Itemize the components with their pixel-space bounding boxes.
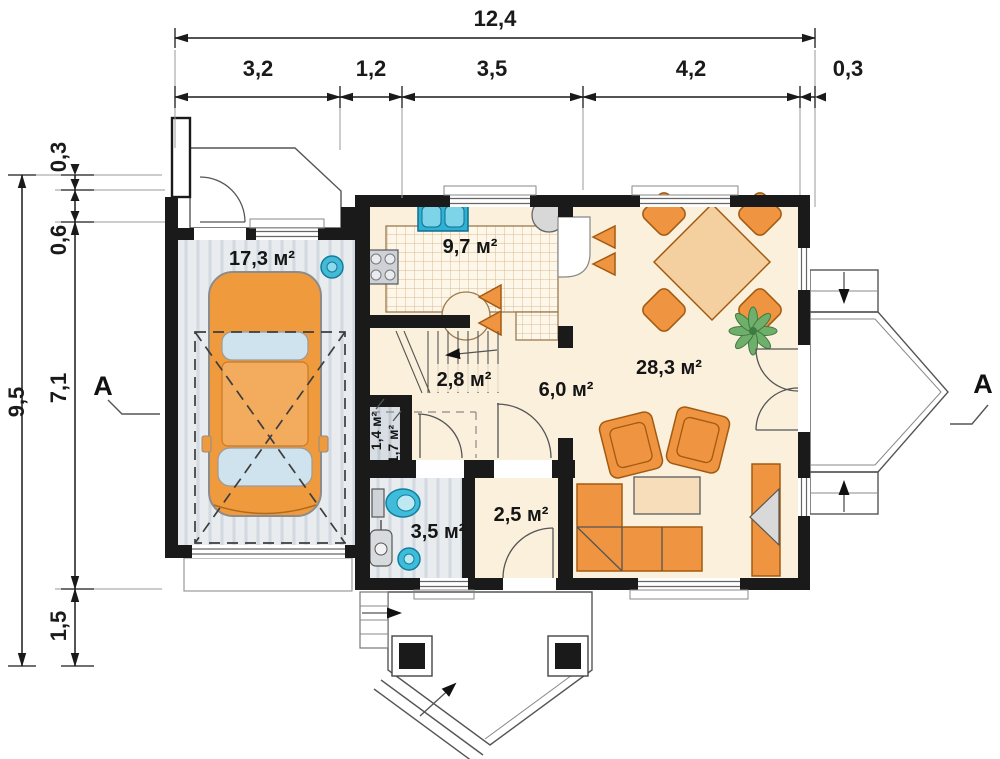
- dim-top-seg1: 3,2: [243, 56, 274, 81]
- garage-apron: [184, 558, 352, 591]
- living-window-top: [632, 186, 738, 207]
- dimensions-top: 12,4 3,2 1,2 3,5 4,2 0,3: [175, 6, 863, 207]
- kitchen-label: 9,7 м²: [443, 236, 498, 258]
- bathroom-window: [414, 578, 474, 599]
- bathroom-label: 3,5 м²: [411, 521, 466, 543]
- hall-label: 6,0 м²: [539, 379, 594, 401]
- floor-plan-canvas: 17,3 м² 9,7 м² 2,8 м² 1,4 м² 1,7 м² 3,5 …: [0, 0, 1000, 759]
- dim-left-seg3: 7,1: [46, 373, 71, 404]
- closet-left-label: 1,4 м²: [368, 411, 384, 450]
- dim-left-seg1: 0,3: [46, 142, 71, 173]
- terrace-window-upper: [798, 248, 810, 290]
- closet-right-label: 1,7 м²: [385, 424, 401, 463]
- canopy-porch: [190, 148, 341, 228]
- gas-meter-icon: [321, 256, 343, 278]
- section-marker-right: A: [973, 369, 993, 399]
- kitchen-window: [444, 186, 536, 207]
- dim-top-seg3: 3,5: [477, 56, 508, 81]
- entry-label: 2,5 м²: [494, 504, 549, 526]
- garage-door: [192, 545, 345, 558]
- stairs-label: 2,8 м²: [437, 369, 492, 391]
- round-sink-icon: [398, 548, 420, 570]
- coffee-table: [634, 477, 700, 514]
- kitchen-counter-ext: [516, 312, 558, 340]
- tv-cabinet: [750, 464, 780, 576]
- porch-steps-arrow: [420, 684, 455, 716]
- terrace: [810, 270, 948, 514]
- toilet-icon: [372, 489, 420, 517]
- garage-label: 17,3 м²: [229, 248, 295, 270]
- section-marker-left: A: [93, 371, 113, 401]
- dim-left-total: 9,5: [4, 387, 29, 418]
- stove-icon: [368, 250, 398, 284]
- living-window-bottom: [630, 578, 748, 599]
- plant-icon: [729, 307, 777, 355]
- dim-top-total: 12,4: [474, 6, 518, 31]
- dim-left-seg2: 0,6: [46, 225, 71, 256]
- dim-top-seg2: 1,2: [356, 56, 387, 81]
- car-icon: [202, 272, 328, 516]
- garage-entry-door: [194, 177, 246, 240]
- dining-table: [640, 190, 784, 334]
- living-label: 28,3 м²: [636, 357, 702, 379]
- porch-pillar-left: [392, 636, 432, 676]
- garage-window: [250, 219, 324, 240]
- dimensions-left: 9,5 0,3 0,6 7,1 1,5: [4, 142, 165, 666]
- porch-pillar-right: [548, 636, 588, 676]
- dim-top-seg4: 4,2: [676, 56, 707, 81]
- dim-left-seg4: 1,5: [46, 611, 71, 642]
- terrace-window-lower: [798, 478, 810, 516]
- dim-top-seg5: 0,3: [833, 56, 864, 81]
- porch-steps: [374, 680, 483, 759]
